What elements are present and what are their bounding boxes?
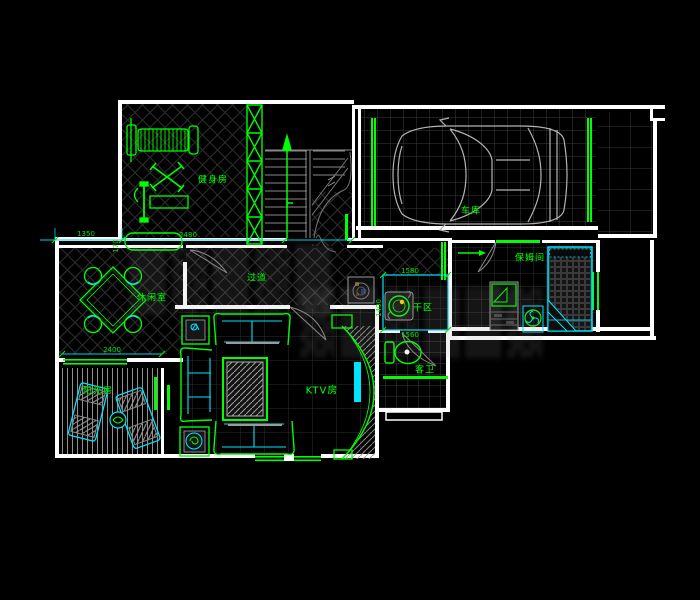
- dim-text: 1350: [77, 230, 95, 238]
- wardrobe-icon: [490, 282, 518, 330]
- dim-text: 1580: [401, 267, 419, 275]
- column-strip: [247, 105, 262, 244]
- dim-text: 2480: [179, 231, 197, 239]
- nanny-door: [496, 240, 540, 243]
- dim-text: 170: [112, 239, 120, 252]
- room-label-ktv: KTV房: [306, 382, 339, 397]
- floorplan-drawing: [0, 0, 700, 600]
- towel-bar: [383, 376, 448, 379]
- hallway-floor2: [350, 248, 448, 275]
- coffee-table: [223, 358, 267, 420]
- garage-door: [587, 118, 589, 222]
- room-label-sunroom: 阳光房: [83, 384, 113, 397]
- cad-canvas: █▓█▓█ ▓█▓██▓ 健身房 车库 过道 休闲室 阳光房 KTV房 干区 客…: [0, 0, 700, 600]
- room-label-dry: 干区: [413, 301, 433, 314]
- washbasin-icon: [385, 291, 413, 320]
- room-label-hallway: 过道: [247, 271, 267, 284]
- room-label-bath: 客卫: [415, 363, 435, 376]
- washing-machine-icon: [348, 277, 374, 303]
- bed-icon: [548, 247, 592, 331]
- dim-text: 2400: [103, 346, 121, 354]
- gym-floor: [122, 104, 246, 237]
- dim-text: 1400: [375, 299, 383, 317]
- bath-floor: [379, 333, 446, 408]
- room-label-leisure: 休闲室: [137, 291, 167, 304]
- driveway-floor: [598, 112, 653, 234]
- room-label-garage: 车库: [461, 204, 481, 217]
- room-label-nanny: 保姆间: [515, 251, 545, 264]
- room-label-gym: 健身房: [198, 173, 228, 186]
- tv-icon: [354, 362, 361, 402]
- dim-text: 1560: [401, 331, 419, 339]
